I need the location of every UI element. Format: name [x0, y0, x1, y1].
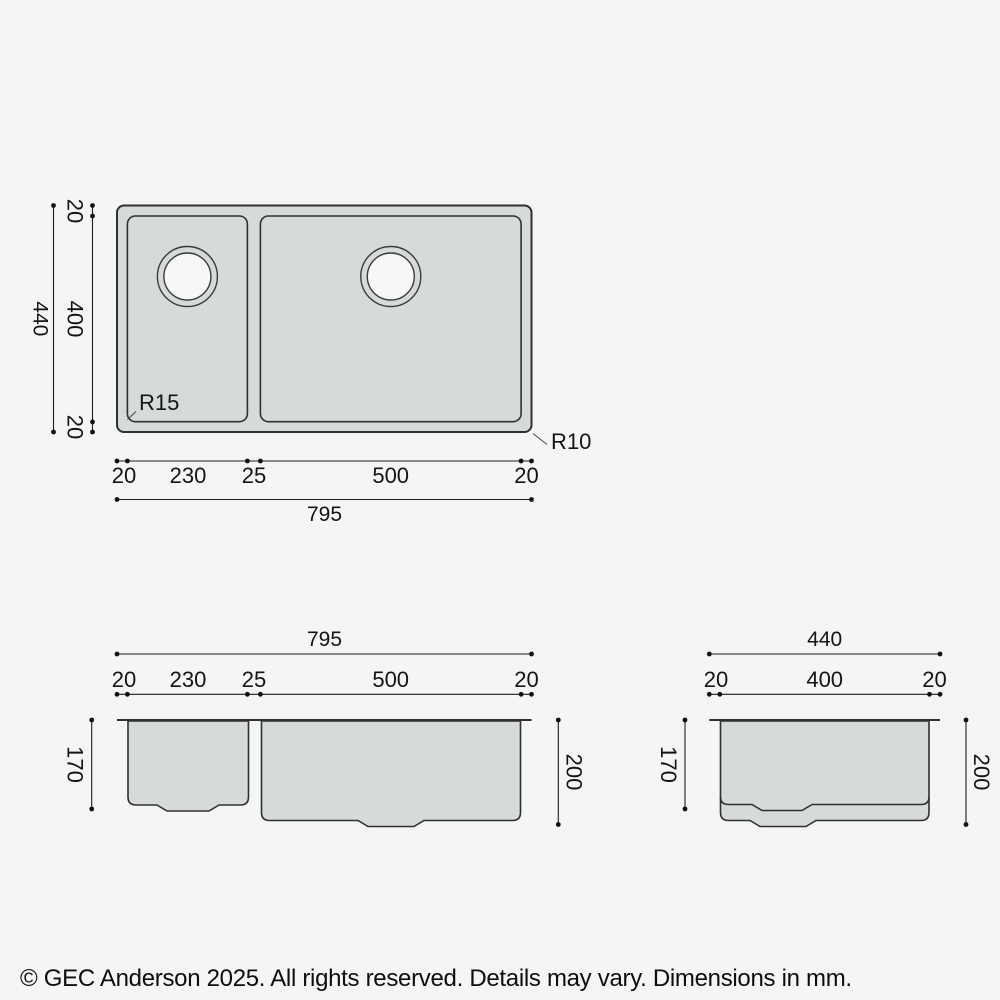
front-small-bowl-section — [128, 721, 249, 811]
plan-height-total-label: 440 — [29, 301, 52, 336]
front-large-bowl-section — [262, 721, 521, 827]
sink-dimension-drawing: R15 R10 440 20 400 20 — [0, 0, 1000, 1000]
side-left-depth-dimension: 170 — [656, 718, 687, 812]
plan-view: R15 R10 440 20 400 20 — [29, 199, 592, 526]
side-left-depth-label: 170 — [656, 746, 681, 783]
plan-width-seg-1-label: 20 — [112, 463, 136, 488]
side-width-total-label: 440 — [807, 628, 842, 651]
large-bowl-drain-icon — [361, 247, 421, 307]
plan-width-segments-dimension: 20 230 25 500 20 — [112, 459, 539, 488]
plan-width-seg-4-label: 500 — [372, 463, 409, 488]
front-right-depth-dimension: 200 — [556, 718, 587, 827]
plan-width-seg-3-label: 25 — [242, 463, 266, 488]
front-elevation-view: 795 20 230 25 500 20 — [63, 628, 587, 827]
plan-width-total-dimension: 795 — [115, 497, 534, 526]
front-width-total-label: 795 — [307, 628, 342, 651]
plan-height-seg-top-label: 20 — [63, 199, 88, 223]
front-width-seg-3-label: 25 — [242, 667, 266, 692]
side-elevation-view: 440 20 400 20 170 — [656, 628, 994, 827]
bowl-radius-label: R15 — [139, 390, 179, 415]
front-width-seg-2-label: 230 — [170, 667, 207, 692]
side-right-depth-dimension: 200 — [964, 718, 994, 827]
side-width-seg-2-label: 400 — [806, 667, 843, 692]
side-right-depth-label: 200 — [969, 754, 994, 791]
copyright-text: © GEC Anderson 2025. All rights reserved… — [20, 965, 852, 992]
plan-height-total-dimension: 440 — [29, 203, 56, 434]
side-width-segments-dimension: 20 400 20 — [704, 667, 947, 697]
side-bowl-section — [721, 721, 930, 827]
front-width-seg-5-label: 20 — [514, 667, 538, 692]
front-width-seg-1-label: 20 — [112, 667, 136, 692]
plan-height-segments-dimension: 20 400 20 — [63, 199, 95, 439]
plan-width-total-label: 795 — [307, 503, 342, 526]
plan-width-seg-5-label: 20 — [514, 463, 538, 488]
front-right-depth-label: 200 — [562, 754, 587, 791]
side-width-seg-3-label: 20 — [922, 667, 946, 692]
front-left-depth-label: 170 — [63, 746, 88, 783]
front-width-seg-4-label: 500 — [372, 667, 409, 692]
side-width-total-dimension: 440 — [707, 628, 943, 656]
side-width-seg-1-label: 20 — [704, 667, 728, 692]
front-left-depth-dimension: 170 — [63, 718, 95, 812]
r10-leader-line — [533, 434, 547, 445]
small-bowl-drain-icon — [157, 247, 217, 307]
outer-radius-label: R10 — [551, 429, 591, 454]
front-width-segments-dimension: 20 230 25 500 20 — [112, 667, 539, 697]
plan-height-seg-mid-label: 400 — [63, 301, 88, 338]
front-width-total-dimension: 795 — [115, 628, 534, 656]
plan-width-seg-2-label: 230 — [170, 463, 207, 488]
plan-height-seg-bottom-label: 20 — [63, 415, 88, 439]
